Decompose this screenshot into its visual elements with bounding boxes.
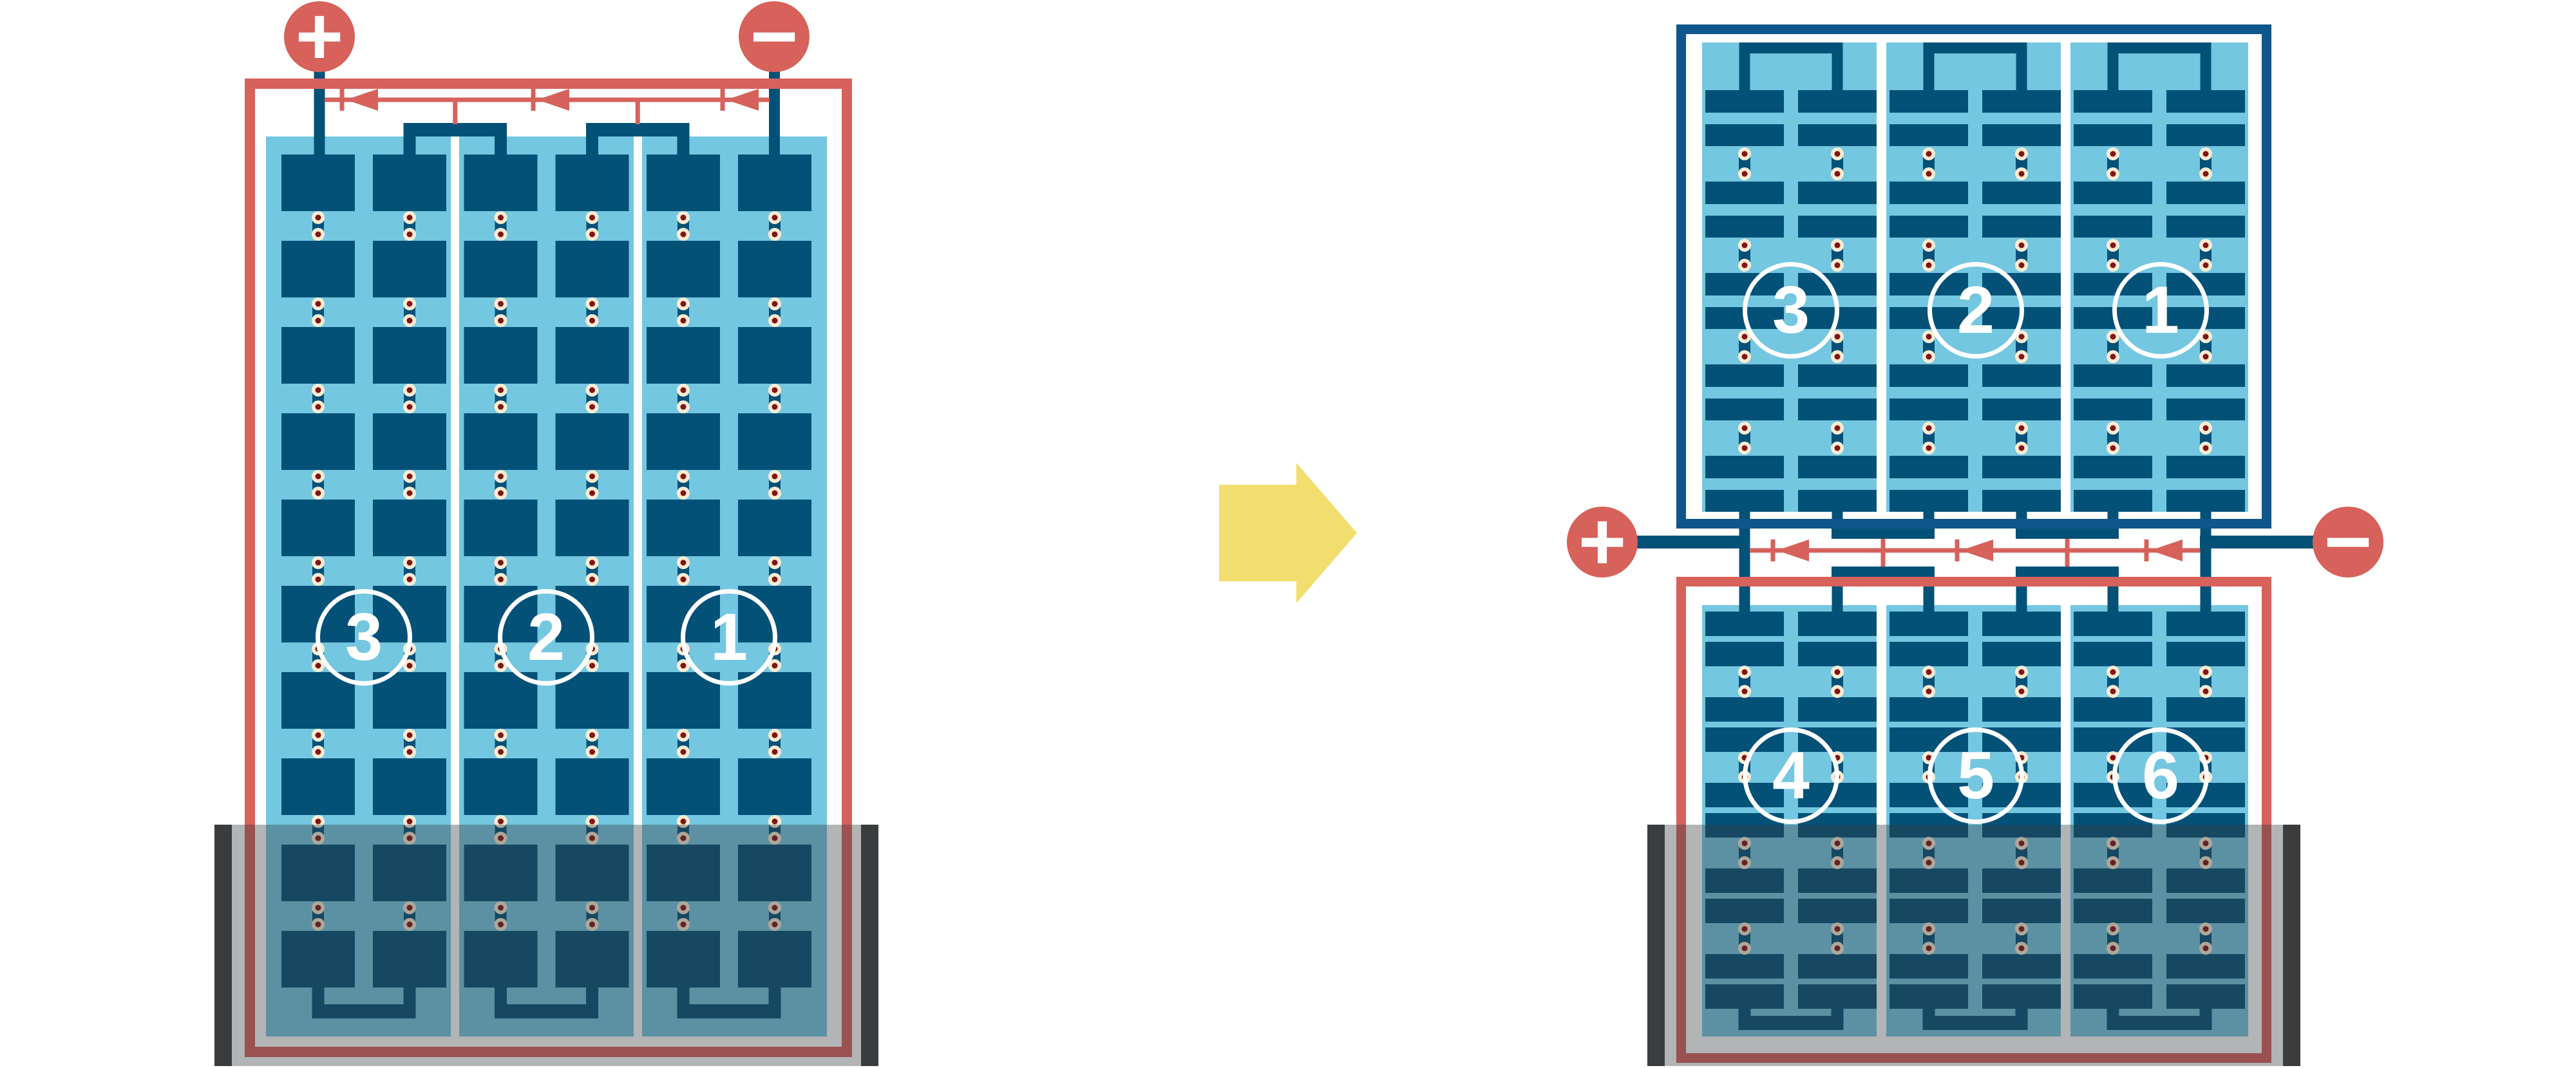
right-top-string-label-3: 3	[1743, 262, 1839, 359]
string-number: 5	[1957, 742, 1994, 809]
string-number: 2	[527, 604, 565, 671]
string-number: 1	[2142, 277, 2179, 344]
transition-arrow	[1219, 463, 1357, 603]
right-bottom-string-label-5: 5	[1927, 727, 2024, 824]
solar-module-wiring-diagram: + − 3 2 1 + − 3 2 1 4 5 6	[0, 0, 2576, 1068]
string-number: 1	[710, 604, 748, 671]
plus-icon: +	[296, 0, 344, 78]
diagram-graphics	[0, 0, 2576, 1068]
string-number: 3	[1772, 277, 1810, 344]
right-top-string-label-2: 2	[1927, 262, 2024, 359]
left-string-label-2: 2	[498, 589, 594, 686]
minus-icon: −	[750, 0, 799, 78]
string-number: 2	[1957, 277, 1994, 344]
string-number: 3	[345, 604, 383, 671]
left-positive-terminal: +	[284, 1, 355, 72]
right-negative-terminal: −	[2313, 507, 2383, 577]
right-bottom-string-label-4: 4	[1743, 727, 1839, 824]
shade-overlay-right	[1647, 825, 2300, 1066]
string-number: 4	[1772, 742, 1810, 809]
right-top-string-label-1: 1	[2112, 262, 2209, 359]
plus-icon: +	[1578, 501, 1627, 583]
shade-overlay-left	[214, 825, 878, 1066]
left-string-label-1: 1	[681, 589, 777, 686]
right-bottom-string-label-6: 6	[2112, 727, 2209, 824]
string-number: 6	[2142, 742, 2179, 809]
left-negative-terminal: −	[739, 1, 810, 72]
left-string-label-3: 3	[316, 589, 412, 686]
right-positive-terminal: +	[1567, 507, 1638, 577]
minus-icon: −	[2324, 501, 2372, 583]
